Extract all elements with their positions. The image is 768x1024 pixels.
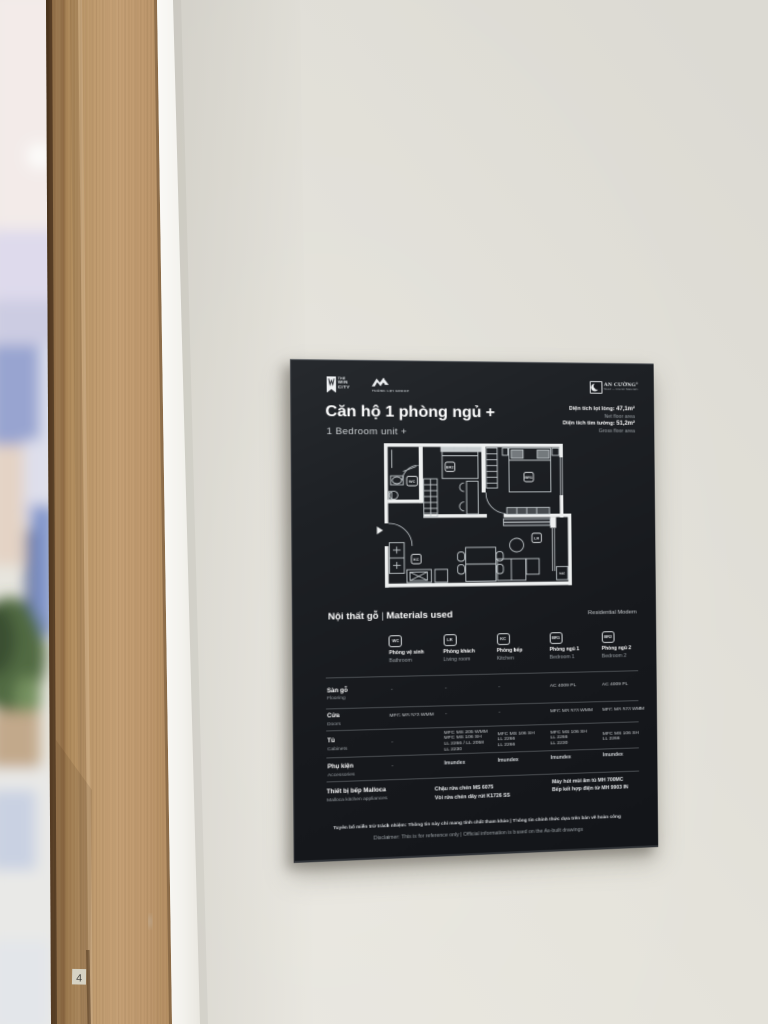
svg-text:WC: WC <box>409 479 416 484</box>
svg-text:BR2: BR2 <box>446 465 454 470</box>
svg-text:BR1: BR1 <box>525 475 533 480</box>
svg-text:4: 4 <box>76 972 82 984</box>
svg-text:M&E: M&E <box>559 571 565 575</box>
svg-text:KC: KC <box>413 557 419 562</box>
svg-text:LR: LR <box>534 536 539 541</box>
